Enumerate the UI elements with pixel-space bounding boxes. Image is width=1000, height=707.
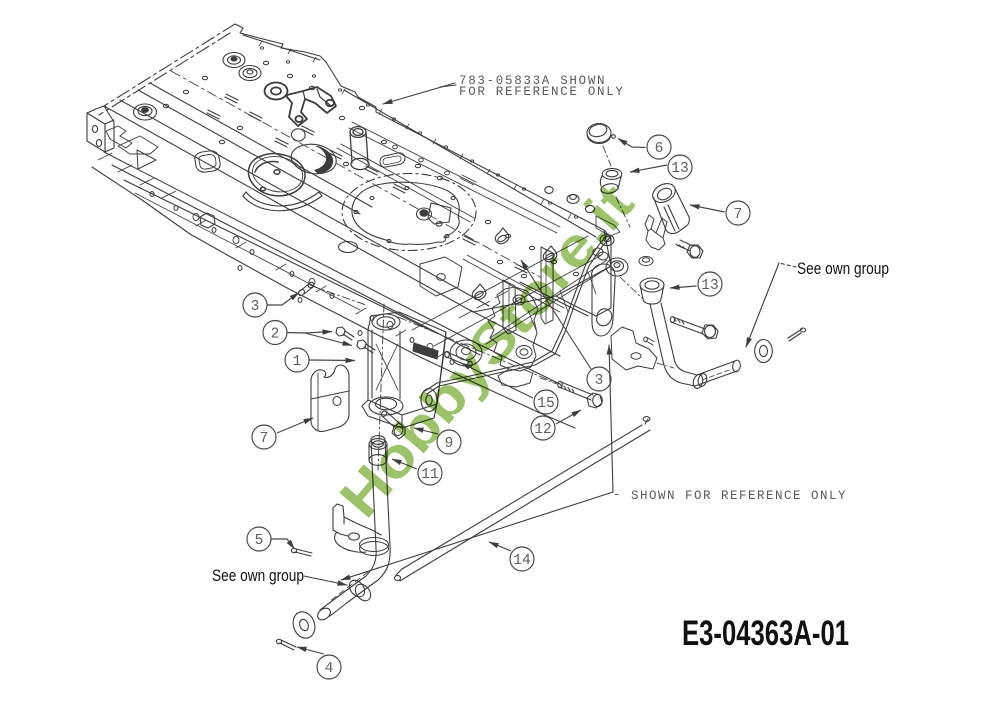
svg-text:14: 14 <box>513 553 530 569</box>
svg-text:E3-04363A-01: E3-04363A-01 <box>682 614 849 653</box>
svg-text:13: 13 <box>671 161 688 177</box>
svg-text:5: 5 <box>255 533 264 549</box>
svg-text:3: 3 <box>251 299 260 315</box>
svg-text:7: 7 <box>734 207 743 223</box>
svg-text:3: 3 <box>595 373 604 389</box>
svg-text:FOR REFERENCE ONLY: FOR REFERENCE ONLY <box>459 85 625 99</box>
svg-text:13: 13 <box>701 278 718 294</box>
svg-text:2: 2 <box>271 327 280 343</box>
svg-text:15: 15 <box>537 396 554 412</box>
svg-text:See own group: See own group <box>797 260 889 278</box>
svg-text:SHOWN FOR REFERENCE ONLY: SHOWN FOR REFERENCE ONLY <box>631 489 847 503</box>
svg-text:4: 4 <box>325 661 334 677</box>
svg-text:See own group: See own group <box>212 567 304 585</box>
svg-text:12: 12 <box>534 422 551 438</box>
svg-text:-: - <box>613 488 622 502</box>
svg-text:7: 7 <box>260 431 269 447</box>
svg-text:6: 6 <box>655 141 664 157</box>
svg-text:1: 1 <box>293 354 302 370</box>
